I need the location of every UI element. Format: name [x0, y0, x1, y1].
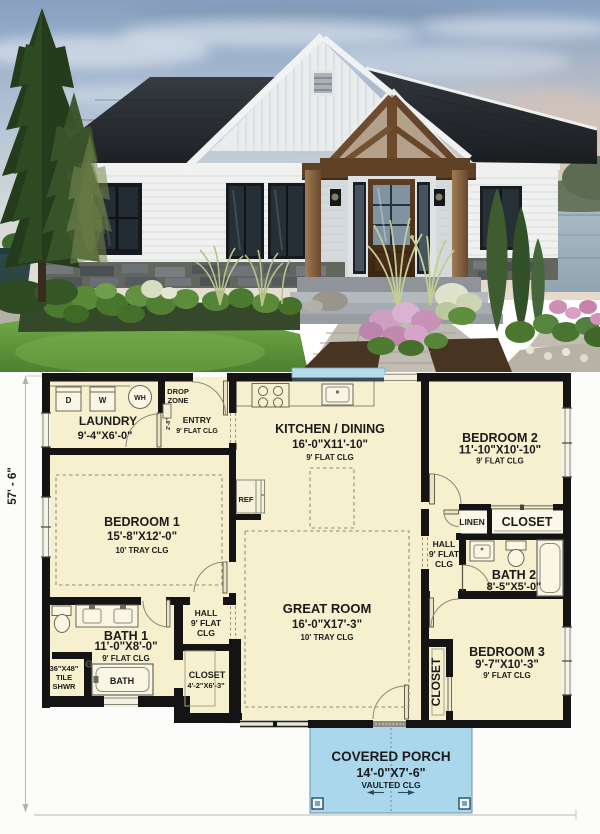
svg-text:REF: REF — [239, 495, 254, 504]
svg-text:BEDROOM 3: BEDROOM 3 — [469, 645, 545, 659]
svg-text:COVERED PORCH: COVERED PORCH — [331, 749, 450, 764]
svg-text:CLOSET: CLOSET — [429, 657, 443, 706]
svg-text:57' - 6": 57' - 6" — [7, 467, 19, 505]
svg-text:2'-8": 2'-8" — [166, 418, 172, 430]
svg-text:14'-0"X7'-6": 14'-0"X7'-6" — [356, 766, 425, 780]
svg-text:36"X48": 36"X48" — [50, 664, 79, 673]
svg-text:DROP: DROP — [167, 387, 189, 396]
svg-text:15'-8"X12'-0": 15'-8"X12'-0" — [107, 531, 177, 543]
svg-text:LAUNDRY: LAUNDRY — [79, 414, 137, 428]
svg-text:4'-2"X6'-3": 4'-2"X6'-3" — [187, 681, 225, 690]
svg-text:9' FLAT CLG: 9' FLAT CLG — [176, 428, 218, 435]
svg-text:9' FLAT CLG: 9' FLAT CLG — [483, 671, 531, 680]
svg-text:10' TRAY CLG: 10' TRAY CLG — [300, 633, 353, 642]
svg-text:LINEN: LINEN — [459, 517, 485, 527]
svg-text:WH: WH — [134, 395, 146, 402]
svg-text:BEDROOM 2: BEDROOM 2 — [462, 431, 538, 445]
svg-text:9'-4"X6'-0": 9'-4"X6'-0" — [78, 430, 133, 442]
svg-text:HALL: HALL — [195, 608, 218, 618]
svg-text:10' TRAY CLG: 10' TRAY CLG — [115, 546, 168, 555]
svg-text:ZONE: ZONE — [168, 396, 189, 405]
svg-text:TILE: TILE — [56, 673, 72, 682]
svg-text:BEDROOM 1: BEDROOM 1 — [104, 515, 180, 529]
svg-text:HALL: HALL — [433, 539, 456, 549]
svg-text:9' FLAT CLG: 9' FLAT CLG — [476, 457, 524, 466]
svg-text:SHWR: SHWR — [53, 682, 76, 691]
svg-text:9' FLAT CLG: 9' FLAT CLG — [306, 453, 354, 462]
svg-text:8'-5"X5'-0": 8'-5"X5'-0" — [487, 581, 542, 593]
svg-text:W: W — [99, 396, 107, 405]
svg-text:BATH: BATH — [110, 676, 134, 686]
svg-text:CLOSET: CLOSET — [502, 515, 553, 529]
svg-text:D: D — [66, 396, 72, 405]
svg-text:CLG: CLG — [197, 628, 215, 638]
svg-text:9' FLAT CLG: 9' FLAT CLG — [102, 654, 150, 663]
svg-text:CLOSET: CLOSET — [189, 670, 226, 680]
svg-text:VAULTED CLG: VAULTED CLG — [361, 780, 421, 790]
svg-text:CLG: CLG — [435, 559, 453, 569]
svg-text:9' FLAT: 9' FLAT — [429, 549, 460, 559]
svg-text:BATH 2: BATH 2 — [492, 568, 536, 582]
svg-text:GREAT ROOM: GREAT ROOM — [283, 601, 372, 616]
svg-text:ENTRY: ENTRY — [183, 415, 212, 425]
svg-text:9' FLAT: 9' FLAT — [191, 618, 222, 628]
svg-text:KITCHEN / DINING: KITCHEN / DINING — [275, 422, 385, 436]
svg-text:16'-0"X11'-10": 16'-0"X11'-10" — [292, 439, 368, 451]
svg-text:11'-10"X10'-10": 11'-10"X10'-10" — [459, 445, 541, 457]
svg-text:16'-0"X17'-3": 16'-0"X17'-3" — [292, 619, 362, 631]
svg-text:9'-7"X10'-3": 9'-7"X10'-3" — [475, 659, 539, 671]
svg-text:11'-0"X8'-0": 11'-0"X8'-0" — [94, 641, 157, 653]
